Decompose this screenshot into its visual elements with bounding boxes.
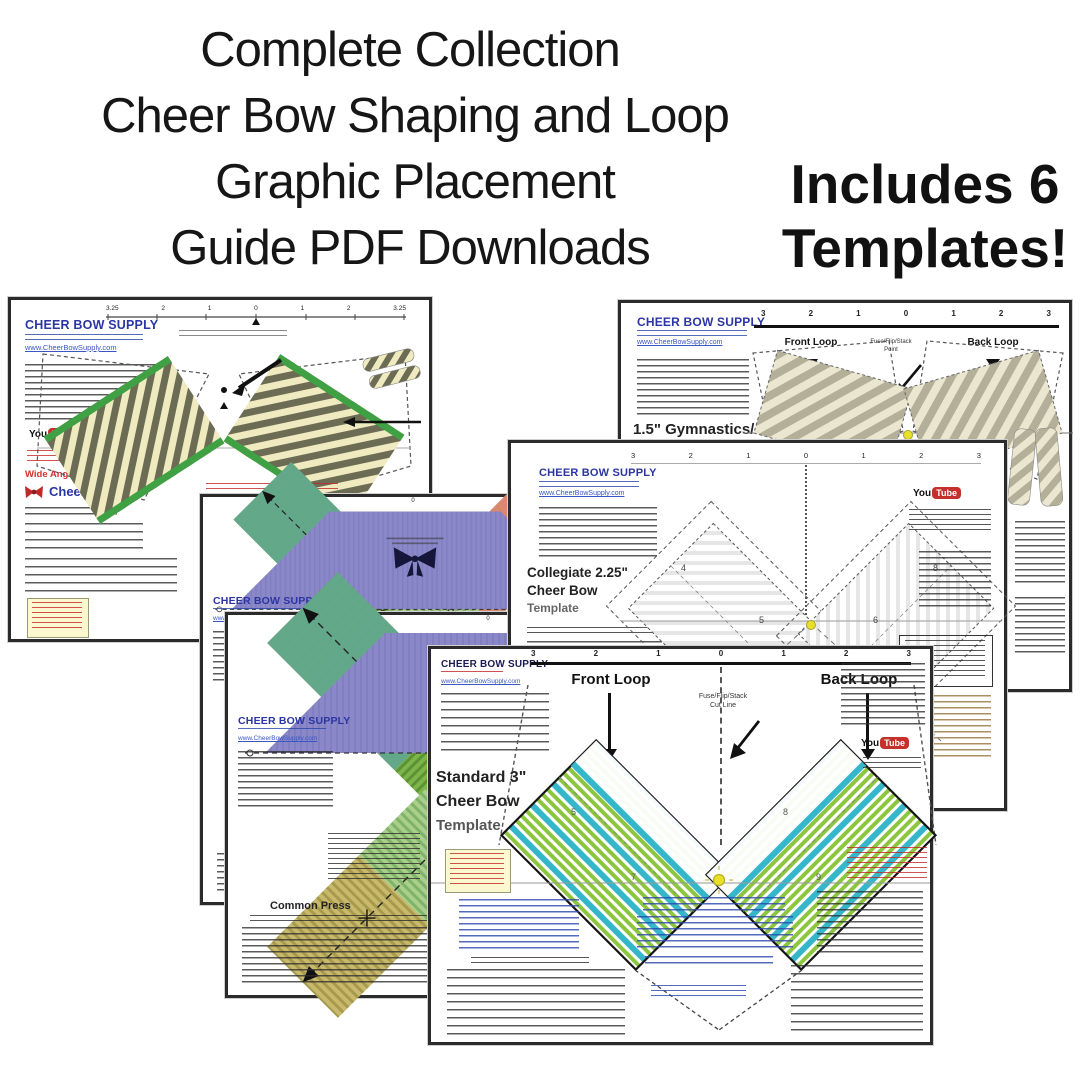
fine-print-lines (637, 330, 747, 336)
ruler-tick-label: 1 (656, 649, 660, 658)
website-link: www.CheerBowSupply.com (637, 339, 722, 346)
loop-number: 7 (631, 872, 636, 882)
ruler-labels: 3 2 1 0 1 2 3 (631, 451, 981, 460)
ruler-tick-label: 3.25 (106, 305, 119, 312)
ruler-labels: 3 2 1 0 1 2 3 (531, 649, 911, 658)
ruler-tick-label: 2 (161, 305, 165, 312)
fine-print-lines (637, 359, 749, 415)
loop-number: 9 (816, 872, 821, 882)
ruler-tick-label: 2 (594, 649, 598, 658)
youtube-tube-text: Tube (880, 737, 909, 749)
ruler-tick-label: 0 (254, 305, 258, 312)
youtube-badge: You Tube (913, 487, 961, 499)
youtube-tube-text: Tube (932, 487, 961, 499)
brand-logo: CHEER BOW SUPPLY (637, 315, 765, 329)
section-header: Common Press (270, 900, 351, 912)
ruler-tick-label: 3 (906, 649, 910, 658)
ruler-tick-label: 1 (856, 309, 860, 318)
ruler-line (106, 314, 406, 326)
fine-print-lines (909, 509, 991, 533)
ruler-tick-label: 2 (919, 451, 923, 460)
website-link: www.CheerBowSupply.com (238, 735, 317, 742)
ruler-tick-label: 3 (1046, 309, 1050, 318)
fine-print-lines (651, 985, 746, 999)
ruler-tick-label: 2 (347, 305, 351, 312)
template-page-standard: CHEER BOW SUPPLY www.CheerBowSupply.com … (428, 646, 933, 1045)
ruler-tick-label: 0 (719, 649, 723, 658)
youtube-you-text: You (861, 738, 879, 749)
fine-print-lines (471, 957, 589, 964)
ruler-bar (754, 325, 1059, 328)
fine-print-lines (447, 969, 625, 1035)
ruler-tick-label: 3 (761, 309, 765, 318)
fine-print-lines (817, 891, 923, 955)
ruler-tick-label: 3 (977, 451, 981, 460)
highlight-note-box (445, 849, 511, 893)
header-line-1: Complete Collection (120, 22, 700, 78)
includes-badge: Includes 6 Templates! (770, 152, 1080, 280)
ruler-labels: 3.25 2 1 0 1 2 3.25 (106, 305, 406, 312)
loop-number: 8 (783, 807, 788, 817)
fine-print-lines (238, 751, 333, 807)
ruler-tick-label: 1 (781, 649, 785, 658)
fine-print-lines (645, 956, 773, 968)
badge-line-1: Includes 6 (770, 152, 1080, 216)
header-line-2: Cheer Bow Shaping and Loop (0, 88, 830, 144)
fine-print-lines (1015, 597, 1065, 655)
fine-print-lines (25, 523, 143, 554)
fine-print-lines (841, 663, 925, 727)
ruler-tick-label: 3.25 (393, 305, 406, 312)
fine-print-lines (637, 916, 793, 951)
ruler-tick-label: 1 (301, 305, 305, 312)
ruler-tick-label: 1 (951, 309, 955, 318)
ruler-tick-label: 2 (809, 309, 813, 318)
fine-print-lines (459, 899, 579, 951)
ruler-tick-label: 3 (631, 451, 635, 460)
header-line-3: Graphic Placement (115, 154, 715, 210)
header-line-4: Guide PDF Downloads (80, 220, 740, 276)
fine-print-lines (250, 915, 432, 921)
ruler-tick-label: 2 (844, 649, 848, 658)
loop-number: 5 (571, 807, 576, 817)
ruler-tick-label: 2 (999, 309, 1003, 318)
template-title: 1.5" Gymnastics/ (633, 421, 754, 438)
fine-print-lines (847, 847, 927, 881)
fine-print-lines (25, 558, 177, 595)
ruler-tick-label: 3 (531, 649, 535, 658)
loop-number: 4 (681, 563, 686, 573)
fine-print-lines (863, 757, 921, 769)
ruler-tick-label: 0 (904, 309, 908, 318)
fine-print-lines (791, 965, 923, 1035)
product-collage: Complete Collection Cheer Bow Shaping an… (0, 0, 1080, 1080)
ruler-tick-label: 1 (746, 451, 750, 460)
fine-print-lines (643, 897, 785, 912)
ruler-labels: 3 2 1 0 1 2 3 (761, 309, 1051, 318)
loop-number: 5 (759, 615, 764, 625)
fine-print-lines (328, 833, 420, 883)
brand-logo: CHEER BOW SUPPLY (238, 715, 351, 727)
ruler-line (631, 463, 981, 464)
youtube-you-text: You (913, 488, 931, 499)
ribbon-swatch (363, 348, 421, 392)
fine-print-lines (441, 671, 503, 676)
template-title-line2: Cheer Bow (527, 583, 598, 598)
ruler-tick-label: 2 (689, 451, 693, 460)
youtube-badge: You Tube (861, 737, 909, 749)
template-title-line3: Template (527, 601, 579, 615)
ribbon-swatch (1007, 425, 1065, 511)
fine-print-lines (242, 927, 432, 987)
template-title-line1: Collegiate 2.25" (527, 565, 628, 580)
website-link: www.CheerBowSupply.com (441, 678, 520, 685)
fine-print-lines (919, 551, 991, 611)
badge-line-2: Templates! (770, 216, 1080, 280)
ruler-tick-label: 0 (486, 616, 489, 622)
fine-print-lines (1015, 521, 1065, 587)
loop-number: 6 (873, 615, 878, 625)
fine-print-lines (450, 853, 504, 887)
pointer-arrow (341, 416, 423, 428)
highlight-note-box (27, 598, 89, 638)
ruler-tick-label: 0 (411, 498, 414, 504)
fine-print-lines (32, 602, 82, 632)
ruler-tick-label: 1 (208, 305, 212, 312)
ruler-tick-label: 1 (862, 451, 866, 460)
fine-print-lines (238, 728, 326, 733)
ruler-tick-label: 0 (804, 451, 808, 460)
website-link: www.CheerBowSupply.com (539, 490, 624, 497)
